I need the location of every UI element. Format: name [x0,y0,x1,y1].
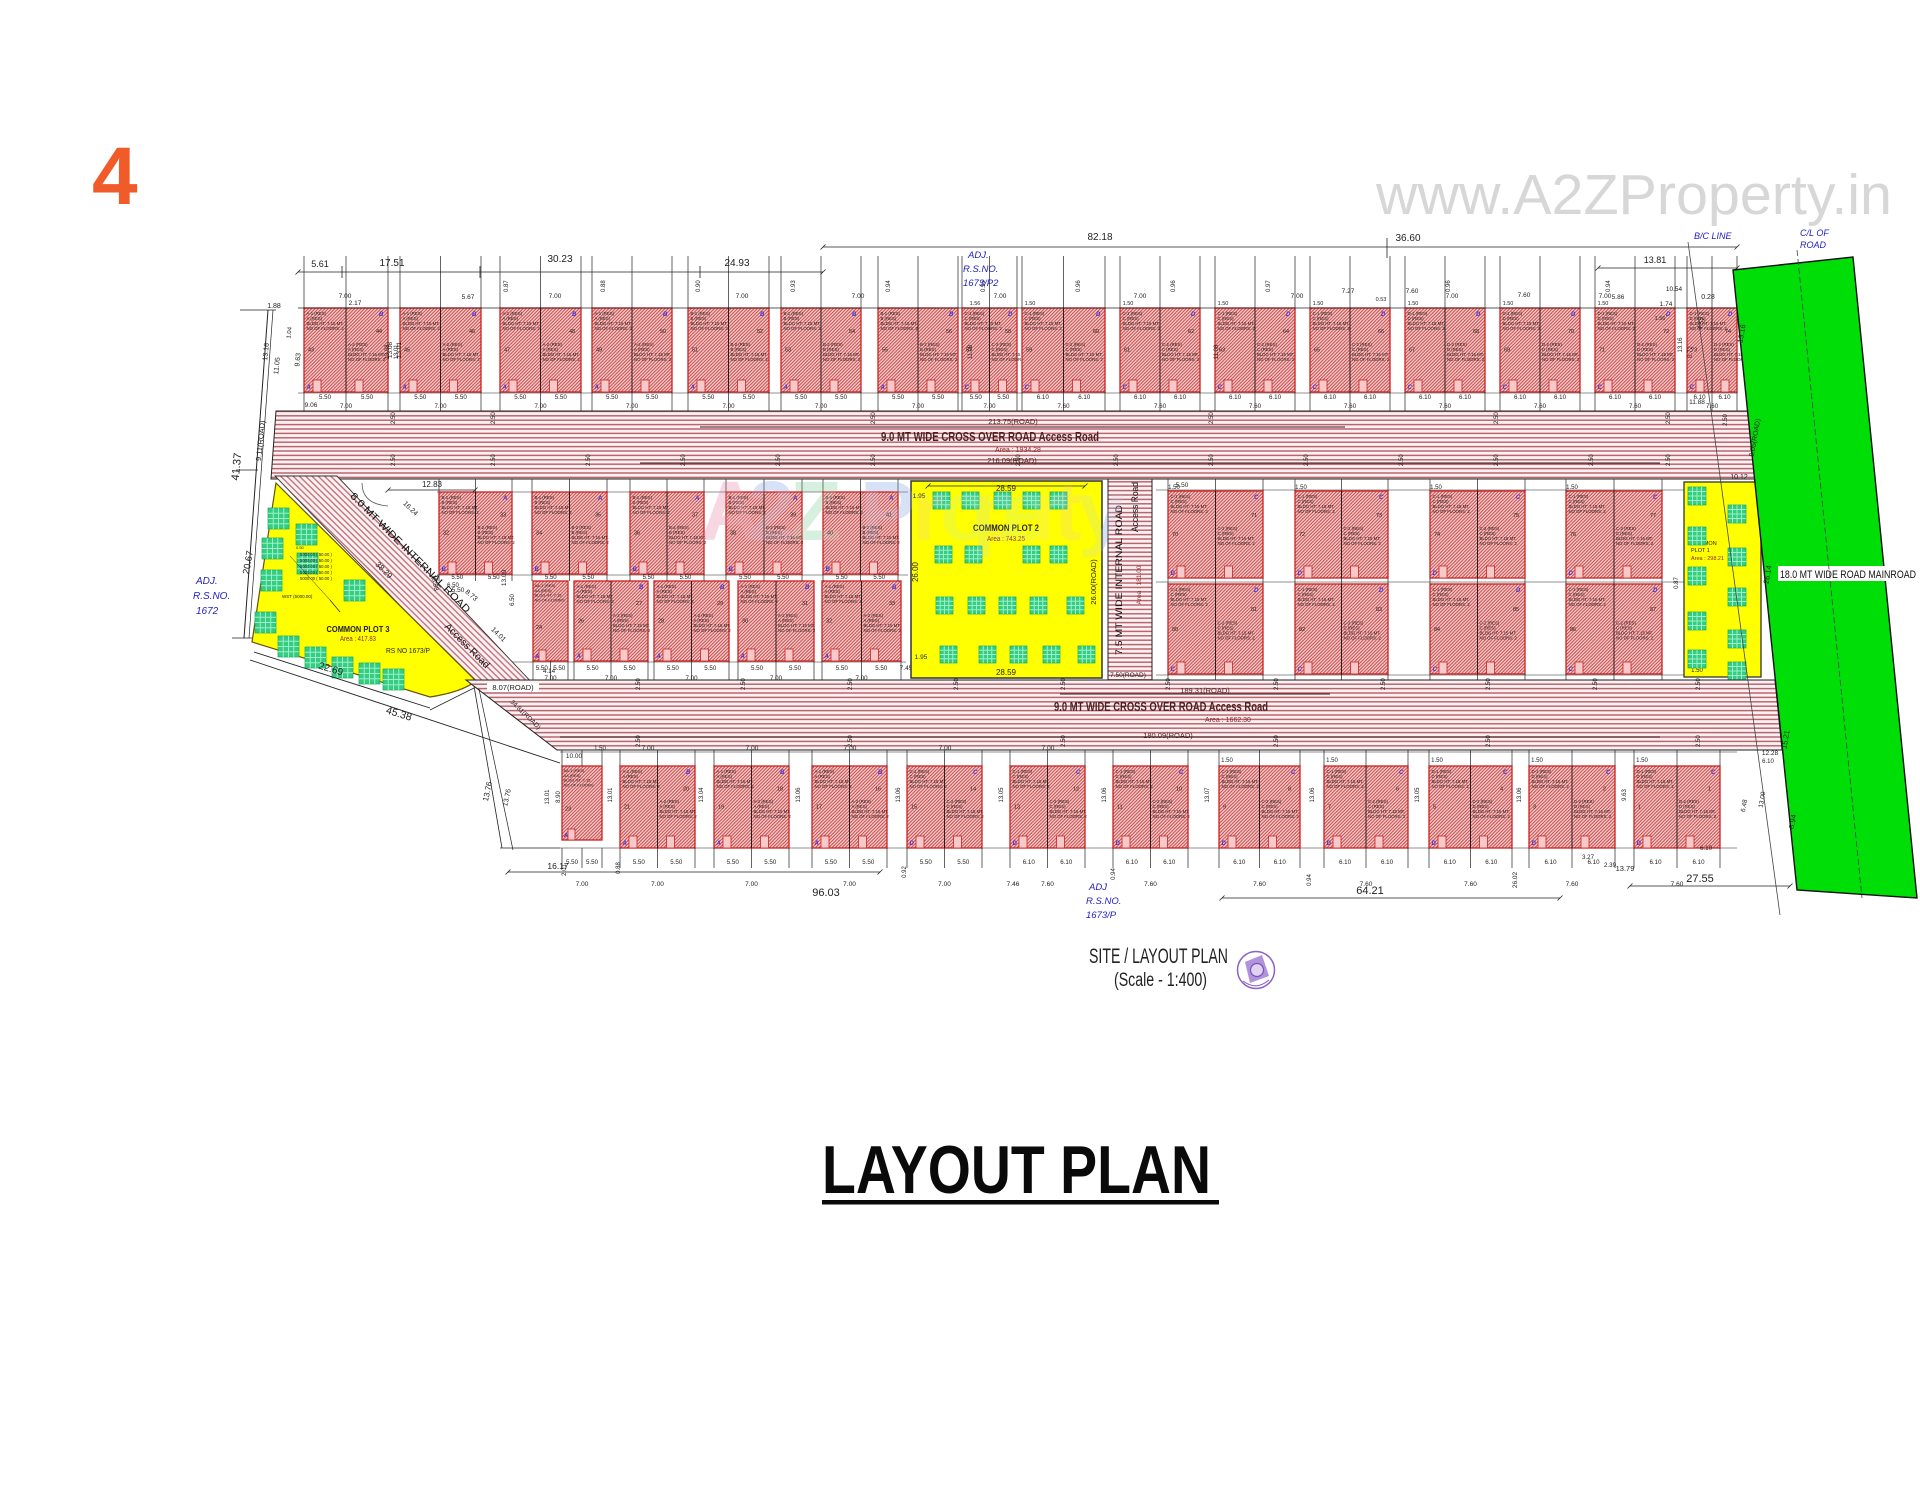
svg-text:28.59: 28.59 [996,668,1017,677]
svg-text:7.00: 7.00 [843,881,856,888]
svg-text:A: A [783,385,788,391]
svg-text:C: C [1433,667,1438,673]
svg-text:NO OF FLOORS: 2: NO OF FLOORS: 2 [1123,326,1161,331]
svg-text:10.54: 10.54 [1666,286,1683,293]
svg-text:7.00: 7.00 [651,881,664,888]
svg-text:NO OF FLOORS: 2: NO OF FLOORS: 2 [1447,357,1485,362]
svg-text:NO OF FLOORS: 2: NO OF FLOORS: 2 [1433,509,1471,514]
svg-text:R.S.NO.: R.S.NO. [963,264,998,275]
svg-text:WST (5000.00): WST (5000.00) [282,594,313,599]
svg-text:11.08: 11.08 [1214,344,1220,359]
svg-text:82.18: 82.18 [1087,232,1112,243]
svg-text:5.50: 5.50 [1176,482,1189,489]
svg-text:NO OF FLOORS: 2: NO OF FLOORS: 2 [1257,357,1295,362]
svg-text:44: 44 [376,329,382,335]
svg-text:74: 74 [1434,532,1440,538]
svg-text:0.94: 0.94 [1606,280,1612,292]
svg-text:NO OF FLOORS: 2: NO OF FLOORS: 2 [694,628,732,633]
svg-text:NO OF FLOORS: 2: NO OF FLOORS: 2 [920,357,958,362]
svg-text:ADJ: ADJ [1088,882,1107,893]
svg-text:ADJ.: ADJ. [195,576,218,587]
svg-text:13: 13 [1014,805,1020,811]
svg-text:Area : 298.21: Area : 298.21 [1691,556,1724,562]
svg-text:C: C [1291,770,1296,776]
svg-text:NO OF FLOORS: 2: NO OF FLOORS: 2 [1480,541,1518,546]
svg-text:B: B [760,312,765,318]
svg-text:5.50: 5.50 [451,575,463,581]
svg-text:67: 67 [1409,348,1415,354]
svg-text:43: 43 [308,348,314,354]
svg-text:1.50: 1.50 [1598,301,1609,307]
svg-text:NO OF FLOORS: 2: NO OF FLOORS: 2 [1298,602,1336,607]
svg-text:NO OF FLOORS: 2: NO OF FLOORS: 2 [1616,541,1654,546]
svg-text:B: B [852,312,857,318]
svg-text:A: A [656,654,661,660]
svg-text:NO OF FLOORS: 2: NO OF FLOORS: 2 [1637,357,1675,362]
svg-text:B: B [686,770,691,776]
svg-text:NO OF FLOORS: 2: NO OF FLOORS: 2 [1542,357,1580,362]
svg-text:20: 20 [683,787,689,793]
svg-text:NO OF FLOORS: 2: NO OF FLOORS: 2 [815,784,853,789]
svg-text:6.10: 6.10 [1229,394,1242,401]
svg-text:2.50: 2.50 [1494,412,1500,424]
svg-text:9.0 MT WIDE CROSS OVER ROAD A: 9.0 MT WIDE CROSS OVER ROAD Access Road [1054,699,1268,714]
svg-text:7.00: 7.00 [815,403,828,410]
svg-text:C: C [1516,495,1521,501]
svg-text:C: C [1254,495,1259,501]
svg-text:5.67: 5.67 [462,294,475,301]
svg-text:7.60: 7.60 [1057,403,1070,410]
svg-text:5.50: 5.50 [643,575,655,581]
svg-text:2: 2 [1603,787,1606,793]
svg-text:7.50(ROAD): 7.50(ROAD) [1110,672,1146,679]
svg-text:NO OF FLOORS: 2: NO OF FLOORS: 2 [1532,784,1570,789]
svg-text:1673/P: 1673/P [1086,910,1117,921]
svg-text:80: 80 [1172,627,1178,633]
svg-text:5.50: 5.50 [997,394,1010,401]
svg-text:6.10: 6.10 [1269,394,1282,401]
svg-text:7.00: 7.00 [736,293,749,300]
svg-text:1.74: 1.74 [1660,301,1673,308]
svg-text:6: 6 [1396,787,1399,793]
svg-text:18: 18 [777,787,783,793]
svg-text:11.08: 11.08 [968,344,974,359]
svg-text:NO OF FLOORS: 2: NO OF FLOORS: 2 [1162,357,1200,362]
svg-text:LAYOUT PLAN: LAYOUT PLAN [822,1132,1211,1208]
svg-text:1.50: 1.50 [1566,485,1578,491]
svg-text:2.50: 2.50 [1696,678,1702,690]
svg-text:A: A [534,654,539,660]
svg-text:8: 8 [1288,787,1291,793]
svg-text:5.50: 5.50 [825,859,838,866]
svg-text:2.50: 2.50 [391,454,397,466]
svg-text:NO OF FLOORS: 2: NO OF FLOORS: 2 [864,628,902,633]
svg-text:9: 9 [1223,805,1226,811]
svg-text:5.50: 5.50 [836,665,849,672]
svg-text:C: C [1653,495,1658,501]
svg-text:7.00: 7.00 [1446,293,1459,300]
svg-text:70: 70 [1172,532,1178,538]
svg-text:7.60: 7.60 [1154,403,1167,410]
svg-text:5000.00 ( 50.00 ): 5000.00 ( 50.00 ) [300,564,333,569]
svg-text:54: 54 [849,329,855,335]
svg-text:5.50: 5.50 [862,859,875,866]
svg-text:NO OF FLOORS: 2: NO OF FLOORS: 2 [660,814,698,819]
svg-text:RS NO 1673/P: RS NO 1673/P [386,646,430,655]
svg-text:66: 66 [1378,329,1384,335]
svg-text:6.10: 6.10 [1233,859,1246,866]
svg-text:6.10: 6.10 [1037,394,1050,401]
svg-text:19: 19 [718,805,724,811]
svg-text:13.06: 13.06 [796,787,802,803]
svg-text:B: B [892,585,897,591]
svg-text:32: 32 [826,619,832,625]
svg-text:5.50: 5.50 [553,665,566,672]
svg-text:13.81: 13.81 [1644,255,1667,265]
svg-text:5.50: 5.50 [957,859,970,866]
svg-text:6.10: 6.10 [1078,394,1091,401]
svg-text:NO OF FLOORS: 2: NO OF FLOORS: 2 [965,326,1003,331]
svg-text:7.60: 7.60 [1534,403,1547,410]
svg-text:2.50: 2.50 [1666,412,1672,424]
svg-text:D: D [1637,841,1642,847]
svg-text:D: D [1433,571,1438,577]
svg-text:Area : 181.00: Area : 181.00 [1136,565,1143,604]
svg-text:1: 1 [1638,805,1641,811]
svg-text:D: D [1476,312,1481,318]
svg-text:65: 65 [1314,348,1320,354]
svg-text:77: 77 [1650,513,1656,519]
svg-text:Area : 1662.30: Area : 1662.30 [1205,717,1251,724]
svg-text:Access Road: Access Road [1130,482,1140,532]
svg-text:5.50: 5.50 [586,859,599,866]
svg-text:1672: 1672 [196,606,219,617]
svg-text:y: y [1078,464,1125,558]
svg-text:59: 59 [1026,348,1032,354]
svg-text:NO OF FLOORS: 2: NO OF FLOORS: 2 [478,540,516,545]
svg-text:2.01: 2.01 [562,864,568,876]
svg-text:2.50: 2.50 [1274,678,1280,690]
svg-text:R.S.NO.: R.S.NO. [193,591,230,602]
svg-text:NO OF FLOORS: 2: NO OF FLOORS: 2 [1480,636,1518,641]
svg-text:0.53: 0.53 [1376,297,1387,303]
svg-text:NO OF FLOORS: 2: NO OF FLOORS: 2 [1569,602,1607,607]
svg-text:2.50: 2.50 [1486,678,1492,690]
svg-text:7.00: 7.00 [1134,293,1147,300]
svg-text:64.21: 64.21 [1356,885,1384,897]
svg-text:NO OF FLOORS: 2: NO OF FLOORS: 2 [881,326,919,331]
svg-text:A: A [690,385,695,391]
svg-text:1.88: 1.88 [267,303,281,310]
svg-text:2.50: 2.50 [586,454,592,466]
svg-text:7.60: 7.60 [1706,403,1719,410]
svg-text:A: A [880,385,885,391]
svg-text:5000.00 ( 50.00 ): 5000.00 ( 50.00 ) [300,558,333,563]
svg-text:6.10: 6.10 [1126,859,1139,866]
svg-text:6.10: 6.10 [1693,394,1706,401]
svg-text:5.50: 5.50 [545,575,557,581]
svg-text:C: C [1313,385,1318,391]
svg-text:NO OF FLOORS: 2: NO OF FLOORS: 2 [731,357,769,362]
svg-text:6.10: 6.10 [1419,394,1432,401]
svg-text:49: 49 [596,348,602,354]
svg-text:1.50: 1.50 [1221,758,1233,764]
svg-text:7: 7 [1328,805,1331,811]
svg-text:C: C [1218,385,1223,391]
svg-text:9.63: 9.63 [1622,789,1628,801]
svg-text:NO OF FLOORS: 2: NO OF FLOORS: 2 [1262,814,1300,819]
svg-text:71: 71 [1251,513,1257,519]
svg-text:68: 68 [1473,329,1479,335]
svg-text:5.50: 5.50 [704,665,717,672]
svg-text:33: 33 [889,601,895,607]
svg-text:1.50: 1.50 [1636,758,1648,764]
svg-text:NO OF FLOORS: 2: NO OF FLOORS: 2 [1218,636,1256,641]
svg-text:6.10: 6.10 [1023,859,1036,866]
svg-text:D: D [1571,312,1576,318]
svg-text:P: P [860,464,916,558]
svg-text:7.27: 7.27 [1342,288,1355,295]
svg-text:9.0 MT WIDE CROSS OVER ROAD A: 9.0 MT WIDE CROSS OVER ROAD Access Road [881,429,1099,444]
svg-text:7.00: 7.00 [939,745,952,752]
svg-text:B: B [878,770,883,776]
svg-text:2.50: 2.50 [1494,454,1500,466]
svg-text:NO OF FLOORS: 2: NO OF FLOORS: 2 [1368,814,1406,819]
svg-text:NO OF FLOORS: 2: NO OF FLOORS: 2 [1352,357,1390,362]
svg-text:7.00: 7.00 [852,293,865,300]
svg-text:0.94: 0.94 [1307,874,1313,886]
svg-text:0.93: 0.93 [791,280,797,292]
svg-text:5.50: 5.50 [836,575,848,581]
svg-text:NO OF FLOORS: NO OF FLOORS [564,782,595,787]
svg-text:PLOT 1: PLOT 1 [1691,548,1710,554]
svg-text:189.31(ROAD): 189.31(ROAD) [1180,686,1230,695]
svg-text:2.50: 2.50 [491,412,497,424]
svg-text:C: C [1179,770,1184,776]
svg-text:NO OF FLOORS: 2: NO OF FLOORS: 2 [1298,509,1336,514]
svg-text:5.50: 5.50 [920,859,933,866]
svg-text:D: D [1516,588,1521,594]
svg-text:0.96: 0.96 [1076,280,1082,292]
svg-text:D: D [1653,588,1658,594]
svg-text:NO OF FLOORS: 2: NO OF FLOORS: 2 [1616,636,1654,641]
svg-text:53: 53 [785,348,791,354]
svg-text:69: 69 [1504,348,1510,354]
svg-text:5.50: 5.50 [455,394,468,401]
svg-text:B: B [826,567,831,573]
svg-text:6.10: 6.10 [1485,859,1498,866]
svg-text:15: 15 [911,805,917,811]
svg-text:B: B [729,567,734,573]
svg-text:5.50: 5.50 [795,394,808,401]
svg-text:NO OF FLOORS: 2: NO OF FLOORS: 2 [717,784,755,789]
svg-text:NO OF FLOORS: 2: NO OF FLOORS: 2 [307,326,345,331]
svg-text:73: 73 [1376,513,1382,519]
svg-text:NO OF FLOORS: 2: NO OF FLOORS: 2 [754,814,792,819]
svg-text:A: A [402,385,407,391]
svg-text:A: A [502,385,507,391]
svg-text:13.79: 13.79 [1616,864,1635,873]
svg-text:2.50: 2.50 [954,678,960,690]
svg-text:5.50: 5.50 [606,394,619,401]
svg-text:51: 51 [692,348,698,354]
svg-text:D: D [1096,312,1101,318]
svg-text:10.00: 10.00 [566,753,583,760]
svg-text:D: D [1666,312,1671,318]
svg-text:5.50: 5.50 [777,575,789,581]
svg-text:5.50: 5.50 [414,394,427,401]
svg-text:7.00: 7.00 [746,745,759,752]
svg-text:13.01: 13.01 [396,341,403,358]
svg-text:A: A [814,841,819,847]
svg-text:0.90: 0.90 [696,280,702,292]
svg-text:B/C LINE: B/C LINE [1694,231,1733,241]
svg-text:NO OF FLOORS: 2: NO OF FLOORS: 2 [1153,814,1191,819]
svg-text:4.14: 4.14 [543,668,556,675]
svg-text:2.50: 2.50 [1304,454,1310,466]
svg-text:NO OF FLOORS: 2: NO OF FLOORS: 2 [577,599,615,604]
svg-text:C: C [965,385,970,391]
svg-text:0.92: 0.92 [902,866,908,878]
svg-text:1.50: 1.50 [1531,758,1543,764]
svg-text:1.50: 1.50 [1313,301,1324,307]
svg-text:NO OF FLOORS: 2: NO OF FLOORS: 2 [1574,814,1612,819]
svg-text:2.50: 2.50 [1723,414,1729,426]
svg-text:13.08: 13.08 [387,341,394,358]
svg-text:C: C [1123,385,1128,391]
svg-text:1.50: 1.50 [1025,301,1036,307]
svg-text:2.50: 2.50 [871,412,877,424]
svg-text:0.28: 0.28 [1701,294,1715,301]
svg-text:7.60: 7.60 [1566,881,1579,888]
svg-text:2.50: 2.50 [1399,454,1405,466]
svg-text:C/L OF: C/L OF [1800,228,1829,238]
svg-text:96.03: 96.03 [812,887,840,899]
svg-text:1.04: 1.04 [286,326,293,339]
svg-text:6.10: 6.10 [1762,759,1774,765]
svg-text:36: 36 [634,531,640,537]
svg-text:6.10: 6.10 [1324,394,1337,401]
svg-text:1.50: 1.50 [1326,758,1338,764]
svg-text:1.50: 1.50 [1123,301,1134,307]
svg-text:NO OF FLOORS: 2: NO OF FLOORS: 2 [691,326,729,331]
svg-text:B: B [949,312,954,318]
svg-text:5.50: 5.50 [680,575,692,581]
svg-text:0.50: 0.50 [296,545,305,550]
svg-text:5.50: 5.50 [764,859,777,866]
svg-text:32: 32 [443,531,449,537]
svg-text:50: 50 [660,329,666,335]
svg-text:A: A [502,496,507,502]
svg-text:7.00: 7.00 [994,293,1007,300]
svg-text:NO OF FLOORS: 2: NO OF FLOORS: 2 [1025,326,1063,331]
svg-text:3: 3 [1533,805,1536,811]
svg-text:6.10: 6.10 [1609,394,1622,401]
svg-text:NO OF FLOORS: 2: NO OF FLOORS: 2 [1218,326,1256,331]
svg-text:5.50: 5.50 [555,394,568,401]
svg-text:6.10: 6.10 [1134,394,1147,401]
svg-text:72: 72 [1663,329,1669,335]
svg-text:5000.00 ( 50.00 ): 5000.00 ( 50.00 ) [300,552,333,557]
svg-text:1.56: 1.56 [970,301,981,307]
svg-text:5.50: 5.50 [702,394,715,401]
svg-text:NO OF FLOORS: 2: NO OF FLOORS: 2 [572,540,610,545]
svg-text:D: D [1728,312,1733,318]
svg-text:0.72: 0.72 [1688,346,1694,358]
svg-text:NO OF FLOORS: 2: NO OF FLOORS: 2 [613,628,651,633]
svg-text:5.50: 5.50 [789,665,802,672]
svg-text:B: B [633,567,638,573]
svg-text:NO OF FLOORS: 2: NO OF FLOORS: 2 [1171,509,1209,514]
svg-text:B: B [663,312,668,318]
svg-text:0.87: 0.87 [504,280,510,292]
svg-text:C: C [1379,495,1384,501]
svg-text:6.50: 6.50 [510,594,516,606]
svg-text:7.00: 7.00 [722,403,735,410]
svg-text:61: 61 [1124,348,1130,354]
svg-text:D: D [1008,312,1013,318]
svg-text:7.00: 7.00 [549,293,562,300]
svg-text:13.01: 13.01 [545,789,551,805]
svg-text:0.87: 0.87 [1674,577,1680,589]
svg-text:A: A [306,385,311,391]
svg-text:A: A [716,841,721,847]
svg-text:2.50: 2.50 [1166,678,1172,690]
svg-text:SITE / LAYOUT PLAN: SITE / LAYOUT PLAN [1089,945,1228,968]
svg-text:D: D [1432,841,1437,847]
svg-text:5.50: 5.50 [727,859,740,866]
svg-text:NO OF FLOORS: 2: NO OF FLOORS: 2 [852,814,890,819]
svg-text:70: 70 [1568,329,1574,335]
svg-text:7.00: 7.00 [340,403,353,410]
svg-text:6.10: 6.10 [1444,859,1457,866]
svg-text:NO OF FLOORS: 2: NO OF FLOORS: 2 [910,784,948,789]
svg-text:36.60: 36.60 [1395,233,1420,244]
svg-text:6.10: 6.10 [1163,859,1176,866]
svg-text:0.94: 0.94 [1111,868,1117,880]
svg-text:2.50: 2.50 [1061,678,1067,690]
svg-text:NO OF FLOORS: 2: NO OF FLOORS: 2 [784,326,822,331]
svg-text:A: A [563,833,568,839]
svg-text:6.10: 6.10 [1649,859,1662,866]
svg-text:NO OF FLOORS: 2: NO OF FLOORS: 2 [1050,814,1088,819]
svg-text:A: A [824,654,829,660]
svg-text:9.06: 9.06 [305,402,318,409]
svg-text:5.50: 5.50 [970,394,983,401]
svg-text:5.50: 5.50 [739,575,751,581]
svg-text:6.10: 6.10 [1174,394,1187,401]
svg-text:13.00: 13.00 [501,569,508,586]
svg-text:NO OF FLOORS: NO OF FLOORS [535,597,566,602]
svg-text:A: A [597,496,602,502]
svg-text:NO OF FLOORS: 2: NO OF FLOORS: 2 [825,599,863,604]
svg-text:5.50: 5.50 [361,394,374,401]
svg-text:26.00(ROAD): 26.00(ROAD) [1089,559,1098,605]
svg-text:B: B [720,585,725,591]
svg-text:(Scale - 1:400): (Scale - 1:400) [1114,970,1207,991]
svg-text:16: 16 [875,787,881,793]
svg-text:6.10: 6.10 [1700,845,1713,852]
svg-text:60: 60 [1093,329,1099,335]
svg-text:7.60: 7.60 [1439,403,1452,410]
svg-text:1: 1 [1708,787,1711,793]
svg-text:NO OF FLOORS: 2: NO OF FLOORS: 2 [543,357,581,362]
svg-text:B: B [780,770,785,776]
svg-text:Area : 1934.28: Area : 1934.28 [995,447,1041,454]
svg-text:D: D [1532,841,1537,847]
svg-text:1673/P2: 1673/P2 [963,278,999,289]
svg-text:NO OF FLOORS: 2: NO OF FLOORS: 2 [947,814,985,819]
